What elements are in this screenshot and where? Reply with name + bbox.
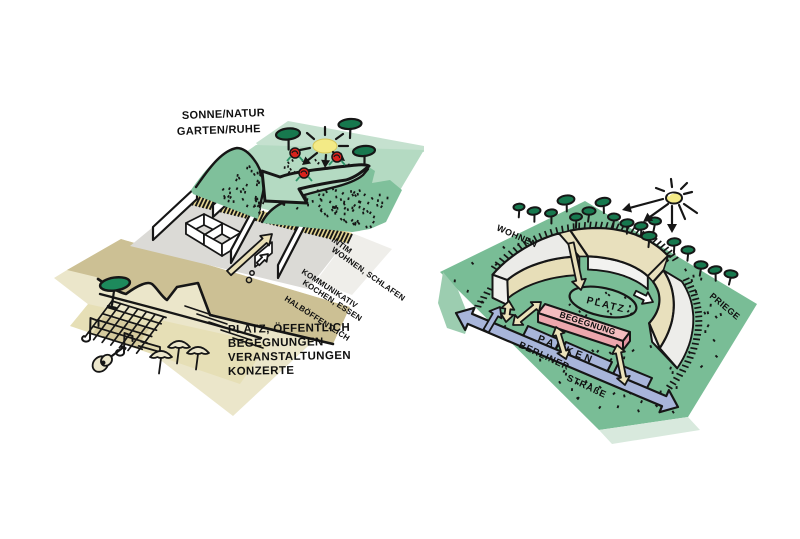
svg-text:VERANSTALTUNGEN: VERANSTALTUNGEN (228, 350, 351, 364)
svg-text:BEGEGNUNGEN: BEGEGNUNGEN (228, 336, 324, 350)
svg-text:KONZERTE: KONZERTE (228, 365, 295, 378)
